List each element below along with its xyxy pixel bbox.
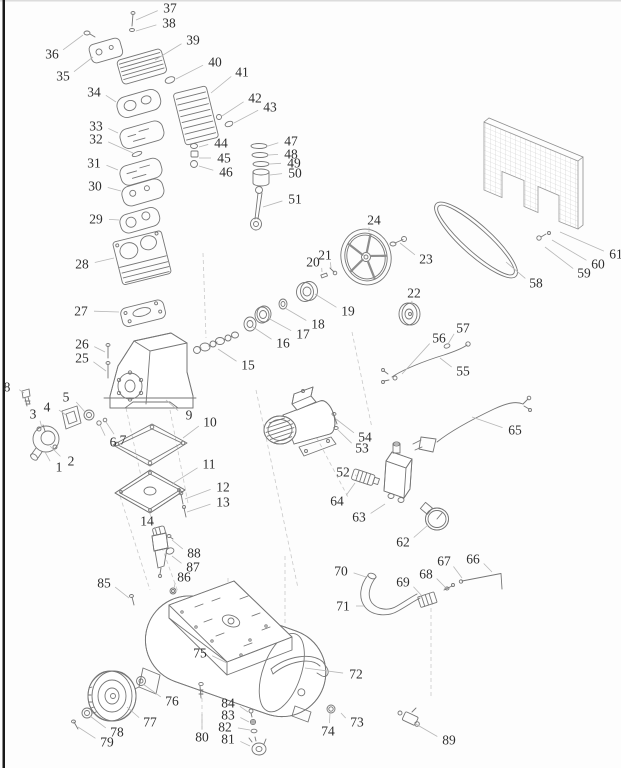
base-plate-11: [115, 470, 185, 513]
part-label-19: 19: [341, 304, 355, 319]
part-label-64: 64: [330, 494, 344, 509]
label-layer: 1234567891011121314151617181920212223242…: [4, 1, 621, 750]
part-label-22: 22: [407, 286, 421, 301]
crankcase-9: [104, 333, 196, 408]
part-label-54: 54: [358, 430, 372, 445]
leader-line-46: [199, 166, 213, 170]
part-label-36: 36: [45, 47, 59, 62]
leader-line-27: [94, 311, 119, 312]
part-label-18: 18: [311, 317, 325, 332]
washer-17: [255, 306, 271, 323]
nut-42: [217, 115, 222, 120]
valve-plate-33: [118, 119, 166, 150]
part-label-3: 3: [30, 407, 37, 422]
part-label-4: 4: [44, 400, 51, 415]
filter-regulator-14: [152, 526, 175, 578]
part-label-43: 43: [263, 100, 277, 115]
check-valve-52: [351, 469, 380, 488]
leader-line-19: [315, 294, 336, 307]
screw-36: [84, 31, 95, 37]
part-label-57: 57: [456, 321, 470, 336]
pulley-22: [399, 303, 420, 325]
part-label-67: 67: [437, 554, 451, 569]
bolts-12-13: [179, 491, 186, 517]
part-label-51: 51: [288, 192, 302, 207]
part-label-32: 32: [89, 132, 103, 147]
cylinder-block-28: [112, 230, 171, 285]
part-label-70: 70: [334, 564, 348, 579]
leader-line-85: [115, 587, 129, 598]
leader-line-57: [448, 334, 454, 344]
leader-line-40: [176, 65, 203, 79]
bracket-4: [62, 406, 81, 429]
part-label-41: 41: [235, 65, 249, 80]
belt-guard: [484, 118, 583, 240]
pressure-switch-63: [384, 442, 412, 503]
exploded-diagram: 1234567891011121314151617181920212223242…: [0, 0, 621, 768]
part-label-33: 33: [89, 119, 103, 134]
bolts-25-26: [106, 344, 110, 379]
leader-line-25: [93, 362, 106, 371]
part-label-37: 37: [163, 1, 177, 16]
bolt-8: [22, 389, 30, 406]
leader-line-82: [238, 728, 250, 730]
leader-line-42: [222, 102, 244, 116]
part-label-52: 52: [336, 465, 350, 480]
leader-line-81: [240, 741, 250, 746]
part-label-87: 87: [186, 560, 200, 575]
leader-line-65: [472, 417, 503, 428]
leader-line-43: [234, 110, 258, 123]
leader-line-64: [346, 483, 355, 495]
part-label-63: 63: [352, 510, 366, 525]
page-top-edge: [0, 0, 621, 2]
pin-32: [132, 150, 143, 157]
part-label-71: 71: [336, 599, 350, 614]
leader-line-44: [199, 144, 208, 147]
part-label-59: 59: [577, 266, 591, 281]
fitting-40: [164, 75, 175, 84]
leader-line-89: [414, 723, 437, 737]
part-label-24: 24: [367, 213, 381, 228]
part-label-30: 30: [88, 179, 102, 194]
pressure-gauge-62: [420, 502, 448, 530]
part-label-88: 88: [187, 546, 201, 561]
parts-diagram-page: 1234567891011121314151617181920212223242…: [0, 0, 621, 768]
leader-line-41: [211, 76, 231, 93]
leader-layer: [19, 11, 604, 746]
part-label-25: 25: [75, 351, 89, 366]
crankcase-assembly: [104, 333, 196, 578]
part-label-38: 38: [162, 16, 176, 31]
part-label-23: 23: [419, 252, 433, 267]
leader-line-79: [78, 727, 95, 738]
part-label-16: 16: [276, 336, 290, 351]
part-label-89: 89: [442, 733, 456, 748]
leader-line-56: [402, 344, 430, 374]
drawing-layer: [22, 12, 583, 756]
leader-line-55: [440, 358, 452, 367]
part-label-74: 74: [321, 724, 335, 739]
leader-line-48: [269, 154, 278, 155]
leader-line-74: [329, 713, 330, 723]
connecting-rod-51: [251, 187, 263, 231]
leader-line-6: [100, 425, 105, 436]
seal-18: [279, 299, 287, 309]
leader-line-8: [19, 390, 24, 393]
leader-line-50: [270, 174, 282, 175]
leader-line-73: [341, 713, 346, 718]
leader-line-13: [187, 504, 210, 512]
part-label-7: 7: [120, 433, 127, 448]
leader-line-51: [263, 201, 282, 207]
part-label-21: 21: [318, 248, 332, 263]
unloader-tube-66-67: [459, 574, 502, 590]
part-label-6: 6: [110, 435, 117, 450]
flange-1-2: [29, 425, 59, 461]
part-label-58: 58: [529, 276, 543, 291]
leader-line-30: [108, 188, 121, 191]
plate-34: [115, 87, 163, 119]
leader-line-49: [270, 163, 281, 164]
part-label-65: 65: [508, 423, 522, 438]
part-label-55: 55: [456, 364, 470, 379]
part-label-85: 85: [97, 576, 111, 591]
part-label-29: 29: [89, 212, 103, 227]
leader-line-70: [354, 573, 366, 577]
part-label-76: 76: [165, 694, 179, 709]
leader-line-87: [172, 556, 181, 563]
motor: [264, 387, 339, 456]
part-label-46: 46: [219, 165, 233, 180]
leader-line-53: [337, 429, 352, 443]
leader-line-31: [106, 165, 118, 170]
part-label-27: 27: [74, 304, 88, 319]
head-stack: [84, 12, 269, 328]
part-label-77: 77: [143, 715, 157, 730]
leader-line-16: [253, 327, 272, 339]
leader-line-38: [136, 25, 156, 31]
piston-rings-47-48-49: [251, 144, 269, 167]
guard-screws-59-60-61: [537, 232, 551, 241]
part-label-12: 12: [216, 480, 230, 495]
part-label-2: 2: [68, 454, 75, 469]
part-label-9: 9: [186, 408, 193, 423]
part-label-56: 56: [432, 331, 446, 346]
bolt-85: [130, 595, 135, 606]
o-ring-74: [327, 705, 335, 713]
part-label-50: 50: [288, 166, 302, 181]
bolt-23: [390, 237, 407, 247]
leader-line-36: [63, 35, 83, 50]
fitting-43: [224, 120, 233, 127]
leader-line-28: [95, 258, 114, 263]
screw-37-38: [130, 12, 136, 32]
leader-line-18: [285, 308, 306, 321]
leader-line-34: [106, 95, 116, 102]
leader-line-68: [437, 579, 446, 588]
part-label-15: 15: [241, 358, 255, 373]
leader-line-88: [172, 540, 183, 549]
part-label-34: 34: [87, 85, 101, 100]
part-label-35: 35: [56, 69, 70, 84]
key-20: [321, 273, 328, 278]
leader-line-17: [268, 318, 291, 331]
air-filter-35: [88, 37, 124, 64]
part-label-80: 80: [195, 730, 209, 745]
hub-19: [297, 282, 318, 302]
o-ring-5: [84, 410, 94, 420]
leader-line-11: [172, 468, 198, 484]
part-label-62: 62: [396, 535, 410, 550]
guard-mesh-panel: [484, 122, 578, 229]
part-label-60: 60: [591, 257, 605, 272]
part-label-44: 44: [214, 136, 228, 151]
drain-valve-73-89: [398, 708, 419, 726]
gasket-27: [119, 299, 166, 328]
leader-line-62: [414, 525, 428, 538]
part-label-14: 14: [140, 514, 154, 529]
part-label-17: 17: [296, 327, 310, 342]
pin-79: [72, 720, 79, 729]
head-cover-39: [116, 48, 167, 85]
part-label-69: 69: [396, 575, 410, 590]
crankshaft-15: [194, 332, 239, 354]
wheel-77: [88, 671, 136, 721]
part-label-28: 28: [75, 257, 89, 272]
outlet-pipe-70-71: [361, 572, 420, 615]
washers-6-7: [97, 418, 107, 425]
leader-line-66: [484, 564, 492, 572]
part-label-73: 73: [350, 715, 364, 730]
leader-line-35: [74, 57, 93, 72]
part-label-5: 5: [63, 390, 70, 405]
part-label-79: 79: [100, 735, 114, 750]
gasket-29: [118, 206, 162, 235]
fittings-44-45-46: [191, 144, 199, 168]
part-label-10: 10: [203, 415, 217, 430]
part-label-31: 31: [87, 156, 101, 171]
part-label-11: 11: [203, 457, 216, 472]
leader-line-33: [108, 128, 118, 133]
leader-line-23: [400, 243, 415, 255]
part-label-42: 42: [248, 91, 262, 106]
part-label-26: 26: [75, 337, 89, 352]
part-label-75: 75: [193, 646, 207, 661]
leader-line-32: [108, 142, 133, 153]
part-label-39: 39: [186, 33, 200, 48]
part-label-40: 40: [208, 55, 222, 70]
leader-line-83: [240, 718, 249, 722]
nut-86: [170, 588, 176, 594]
piston-50: [253, 169, 269, 186]
leader-line-67: [453, 566, 462, 578]
leader-line-69: [413, 587, 422, 596]
valve-plate-30: [120, 177, 166, 208]
leader-line-37: [136, 11, 158, 20]
cylinder-head-41: [173, 86, 219, 146]
leader-line-63: [371, 504, 385, 513]
part-label-8: 8: [4, 380, 11, 395]
fasteners-81-84: [249, 709, 266, 755]
belt-58: [426, 193, 526, 288]
flywheel-24: [336, 224, 397, 289]
screw-21: [330, 268, 337, 275]
leader-line-47: [268, 143, 278, 146]
leader-line-29: [109, 219, 119, 220]
part-label-72: 72: [349, 667, 363, 682]
part-label-66: 66: [466, 552, 480, 567]
part-label-68: 68: [419, 567, 433, 582]
leader-line-21: [330, 262, 331, 268]
leader-line-60: [552, 240, 586, 260]
leader-line-10: [183, 426, 199, 438]
part-label-61: 61: [609, 247, 621, 262]
leader-line-1: [45, 452, 50, 461]
part-label-1: 1: [56, 460, 63, 475]
leader-line-26: [94, 347, 105, 352]
bearing-16: [244, 317, 256, 331]
part-label-84: 84: [221, 696, 235, 711]
leader-line-12: [185, 489, 211, 499]
part-label-13: 13: [216, 495, 230, 510]
fitting-68: [444, 584, 455, 591]
leader-line-39: [155, 44, 181, 60]
leader-line-7: [106, 422, 114, 434]
leader-line-52: [355, 475, 357, 477]
part-label-45: 45: [217, 151, 231, 166]
leader-line-15: [218, 349, 237, 361]
